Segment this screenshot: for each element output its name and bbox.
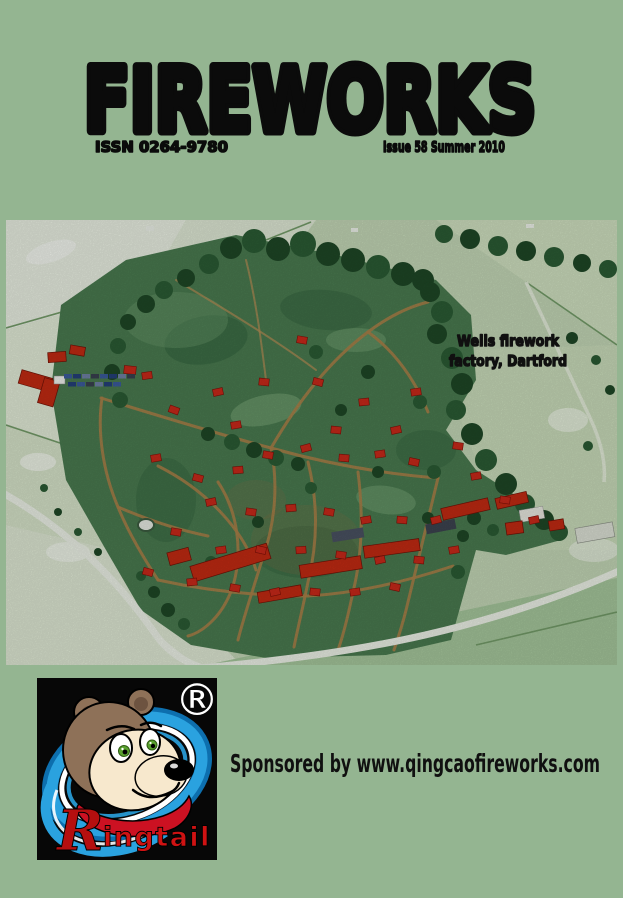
masthead: FIREWORKS ISSN 0264-9780 Issue 58 Summer… bbox=[0, 0, 623, 180]
issue-info: Issue 58 Summer 2010 bbox=[383, 138, 505, 156]
photo-grain bbox=[6, 220, 617, 665]
magazine-title: FIREWORKS bbox=[84, 49, 536, 152]
cover-photo: Wells firework factory, Dartford bbox=[6, 220, 617, 665]
sponsor-line: Sponsored by www.qingcaofireworks.com bbox=[220, 742, 620, 786]
caption-line-2: factory, Dartford bbox=[449, 352, 567, 370]
issn-number: ISSN 0264-9780 bbox=[95, 138, 228, 156]
sponsor-text: Sponsored by www.qingcaofireworks.com bbox=[230, 749, 600, 778]
wordmark-rest: ingtail bbox=[103, 822, 211, 853]
magazine-cover: FIREWORKS ISSN 0264-9780 Issue 58 Summer… bbox=[0, 0, 623, 898]
ringtail-logo: ® bbox=[37, 678, 217, 860]
caption-line-1: Wells firework bbox=[457, 332, 560, 350]
wordmark-initial: R bbox=[55, 798, 104, 860]
